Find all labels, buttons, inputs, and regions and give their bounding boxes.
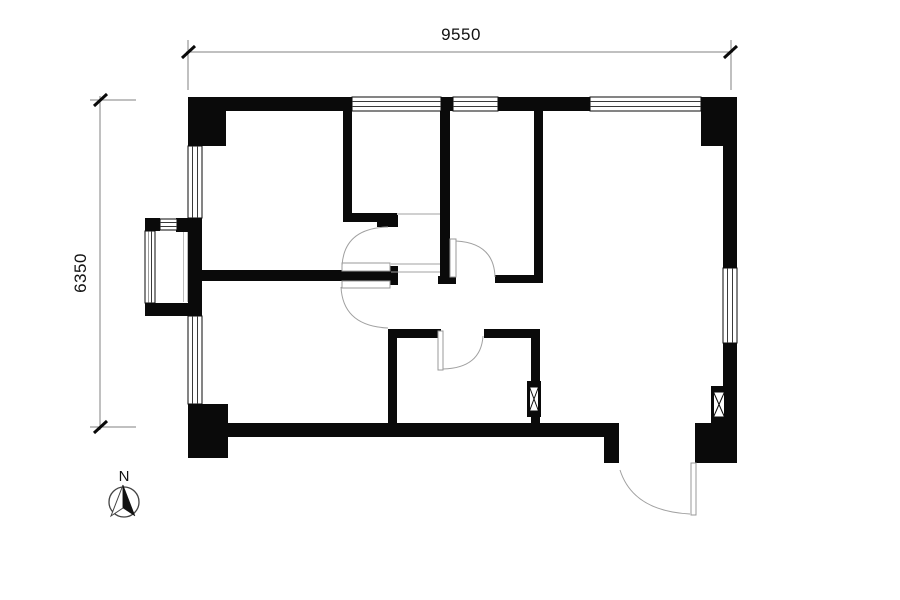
- floor-plan-canvas: 9550 6350: [0, 0, 900, 600]
- bay-neck-block: [176, 218, 202, 232]
- bay-inner-face: [184, 232, 188, 302]
- door-leaf-bathroom: [438, 331, 443, 370]
- wall-rooms-divider: [202, 270, 390, 281]
- north-label: N: [119, 468, 130, 485]
- wall-corridor-east: [440, 111, 450, 278]
- window-top-2: [453, 97, 498, 111]
- wall-top-a: [188, 97, 353, 111]
- wall-kitchen-south: [495, 275, 543, 283]
- window-left-lower: [188, 316, 202, 404]
- walls: [145, 97, 737, 463]
- door-swing-bathroom: [443, 336, 483, 369]
- wall-bath-north-west: [388, 329, 441, 338]
- window-top-1: [352, 97, 441, 111]
- bay-corner-block: [145, 218, 160, 231]
- wall-bottom: [228, 423, 605, 437]
- door-leaf-entrance: [691, 463, 696, 515]
- bay-sill-block: [145, 303, 202, 316]
- bay-window-top: [160, 219, 177, 230]
- bay-window-side: [145, 231, 155, 303]
- door-swing-entrance: [620, 470, 690, 514]
- wall-cap: [377, 215, 398, 227]
- dimension-left: 6350: [71, 94, 136, 433]
- door-leaf-bedroom2: [342, 281, 390, 288]
- wall-top-pier: [440, 97, 453, 111]
- wall-top-b: [498, 97, 590, 111]
- door-swing-bedroom1: [342, 227, 388, 266]
- floor-plan-drawing: 9550 6350: [0, 0, 900, 600]
- window-top-3: [590, 97, 701, 111]
- door-leaf-bedroom1: [342, 263, 390, 271]
- window-right: [723, 268, 737, 343]
- wall-bath-north-east: [484, 329, 540, 338]
- wall-right-upper: [723, 146, 737, 268]
- wall-entry-jamb: [604, 423, 619, 463]
- wall-bedroom1-east: [343, 111, 352, 216]
- wall-kitchen-east: [534, 111, 543, 283]
- door-swing-kitchen: [456, 241, 495, 277]
- compass-needle-white-icon: [111, 485, 123, 516]
- dimension-label-width: 9550: [441, 25, 481, 44]
- dimension-top: 9550: [182, 25, 737, 90]
- door-leaf-kitchen: [450, 239, 456, 277]
- column-bottom-right: [695, 423, 737, 463]
- shaft-symbols: [530, 387, 725, 417]
- dimension-label-height: 6350: [71, 253, 90, 293]
- column-bottom-left: [188, 404, 228, 458]
- door-swing-bedroom2: [341, 287, 388, 328]
- north-arrow: N: [109, 468, 139, 517]
- window-left-upper: [188, 146, 202, 218]
- column-top-right: [701, 97, 737, 146]
- wall-bath-west: [388, 338, 397, 423]
- wall-left-middle: [188, 218, 202, 316]
